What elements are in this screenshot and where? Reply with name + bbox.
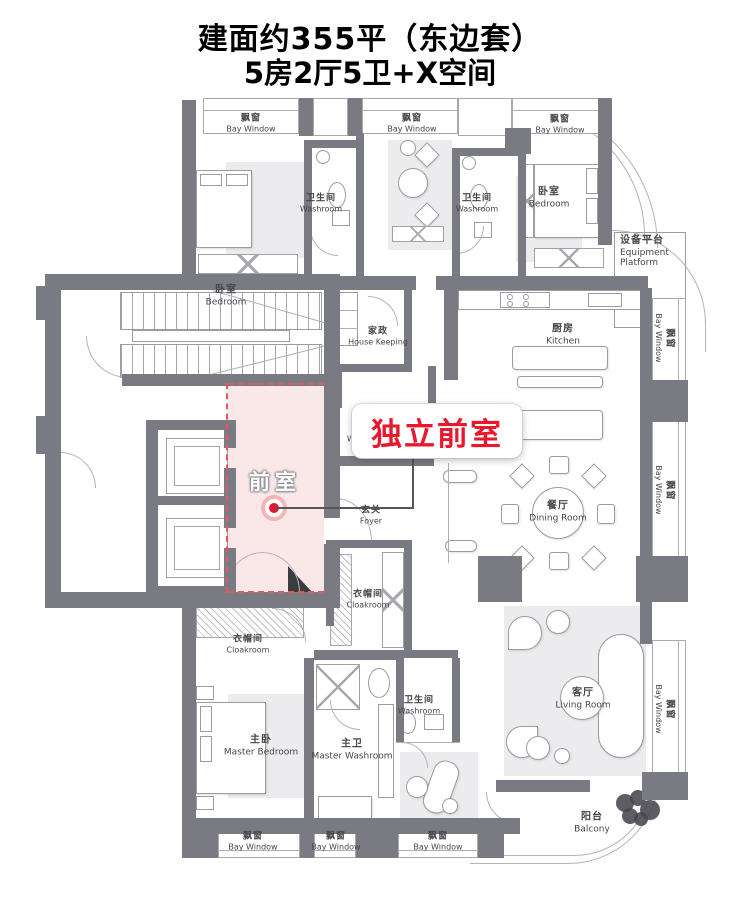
wall <box>334 364 412 372</box>
window-line <box>678 640 679 780</box>
washroom-top-left-zh: 卫生间 <box>300 194 342 205</box>
wall <box>36 416 46 454</box>
bay-window-top-2-zh: 飘窗 <box>387 114 436 125</box>
wall <box>348 98 362 136</box>
washroom-top-left-en: Washroom <box>300 205 342 215</box>
pillow <box>226 174 248 186</box>
washroom-top-right-zh: 卫生间 <box>456 194 498 205</box>
washroom-bottom-zh: 卫生间 <box>398 696 440 707</box>
elevator-car-inner <box>174 446 220 486</box>
living-room: 客厅Living Room <box>555 687 610 710</box>
wall <box>182 602 196 834</box>
bay-window-top-1: 飘窗Bay Window <box>226 114 275 135</box>
door-arc <box>456 226 484 254</box>
side-table <box>546 610 570 634</box>
bay-window-right-1-zh: 飘窗 <box>663 313 674 362</box>
window-line <box>512 110 600 111</box>
washroom-top-left: 卫生间Washroom <box>300 194 342 215</box>
wall <box>598 157 612 245</box>
dining-chair <box>549 456 569 474</box>
pillow <box>200 706 212 732</box>
wall <box>356 832 398 858</box>
master-bedroom: 主卧Master Bedroom <box>224 734 298 757</box>
master-washroom-zh: 主卫 <box>311 738 392 751</box>
pouf <box>442 798 458 814</box>
stair-treads <box>120 344 322 378</box>
bench <box>392 226 444 242</box>
dining-chair <box>509 463 534 488</box>
living-room-zh: 客厅 <box>555 687 610 700</box>
dining-chair <box>597 504 615 524</box>
equipment-platform-zh: 设备平台 <box>620 235 684 248</box>
door-arc <box>60 452 96 488</box>
equipment-platform-en: Equipment Platform <box>620 247 684 269</box>
wall <box>478 832 504 858</box>
wall <box>518 140 526 276</box>
plant-icon <box>634 812 648 826</box>
pillow <box>200 174 222 186</box>
dining-chair <box>549 552 569 570</box>
wall <box>182 100 196 276</box>
callout-leader-line <box>274 507 414 509</box>
wall <box>326 540 412 548</box>
wardrobe <box>198 254 298 274</box>
bay-window-top-2-en: Bay Window <box>387 125 436 135</box>
shower-head <box>462 156 476 170</box>
wall <box>299 98 313 136</box>
bay-window-right-2-en: Bay Window <box>654 465 664 514</box>
master-bedroom-en: Master Bedroom <box>224 747 298 758</box>
chair <box>406 776 428 798</box>
bay-window-bottom-3-zh: 飘窗 <box>413 832 462 843</box>
wall <box>640 288 652 382</box>
bay-window-top-2: 飘窗Bay Window <box>387 114 436 135</box>
armchair <box>508 616 542 650</box>
dining-room-en: Dining Room <box>529 513 587 524</box>
bay-window-bottom-3: 飘窗Bay Window <box>413 832 462 853</box>
bay-window-strip <box>313 98 348 136</box>
wall <box>452 658 460 742</box>
highlight-dashed-border <box>226 383 228 593</box>
shower-head <box>316 150 330 164</box>
dining-chair <box>581 545 606 570</box>
wall <box>404 540 412 652</box>
pouf <box>400 140 416 156</box>
cloakroom: 衣帽间Cloakroom <box>227 635 270 656</box>
wall <box>640 420 652 560</box>
title-line-2: 5房2厅5卫+X空间 <box>0 50 740 92</box>
washroom-top-right-en: Washroom <box>456 205 498 215</box>
bay-window-strip <box>458 98 512 136</box>
bedroom-top-right-en: Bedroom <box>529 199 570 210</box>
bedroom-top-left-en: Bedroom <box>206 297 247 308</box>
burner <box>523 301 529 307</box>
wall <box>314 650 404 660</box>
wall <box>598 98 612 160</box>
door-arc <box>368 296 398 326</box>
house-keeping-zh: 家政 <box>348 327 408 338</box>
bedroom-top-left-zh: 卧室 <box>206 284 247 297</box>
door-arc <box>86 336 128 378</box>
washroom-top-right: 卫生间Washroom <box>456 194 498 215</box>
bay-window-right-3-en: Bay Window <box>654 684 664 733</box>
cloakroom-zh: 衣帽间 <box>227 635 270 646</box>
wall <box>636 556 688 602</box>
wall <box>326 540 334 626</box>
window-line <box>678 420 679 560</box>
burner <box>523 294 529 300</box>
burner <box>507 294 513 300</box>
living-room-en: Living Room <box>555 700 610 711</box>
bay-window-top-3-zh: 飘窗 <box>535 115 584 126</box>
washroom-bottom: 卫生间Washroom <box>398 696 440 717</box>
wall <box>182 832 218 858</box>
master-bedroom-zh: 主卧 <box>224 734 298 747</box>
wall <box>356 133 364 276</box>
wall <box>146 420 236 430</box>
bay-window-bottom-2-zh: 飘窗 <box>311 832 360 843</box>
cloakroom-small: 衣帽间Cloakroom <box>347 590 390 611</box>
bay-window-right-2: 飘窗Bay Window <box>654 465 675 514</box>
wall <box>640 380 688 422</box>
bench <box>445 540 477 552</box>
kitchen-table <box>517 410 603 440</box>
wall <box>146 586 236 596</box>
pouf <box>526 736 550 760</box>
cloakroom-en: Cloakroom <box>227 646 270 656</box>
wall <box>478 556 522 602</box>
cloakroom-small-en: Cloakroom <box>347 601 390 611</box>
bay-window-bottom-1: 飘窗Bay Window <box>228 832 277 853</box>
nightstand <box>196 796 214 810</box>
front-room-label: 前室 <box>249 466 301 496</box>
master-washroom: 主卫Master Washroom <box>311 738 392 761</box>
wall <box>334 366 342 408</box>
round-table <box>398 168 428 198</box>
kitchen-en: Kitchen <box>546 336 580 347</box>
kitchen: 厨房Kitchen <box>546 323 580 346</box>
bay-window-top-1-zh: 飘窗 <box>226 114 275 125</box>
wall <box>496 780 590 792</box>
balcony-en: Balcony <box>574 824 610 835</box>
elevator-car-inner <box>174 526 220 570</box>
wall <box>36 286 46 320</box>
window-line <box>203 110 299 111</box>
house-keeping-en: House Keeping <box>348 338 408 348</box>
wall <box>642 772 688 800</box>
kitchen-island <box>512 346 608 370</box>
dining-room: 餐厅Dining Room <box>529 500 587 523</box>
wall <box>304 140 364 148</box>
equipment-platform: 设备平台Equipment Platform <box>620 235 684 269</box>
bay-window-bottom-3-en: Bay Window <box>413 843 462 853</box>
pouf <box>554 748 570 764</box>
balcony: 阳台Balcony <box>574 811 610 834</box>
nightstand <box>196 686 214 700</box>
kitchen-island <box>517 376 603 388</box>
window-line <box>362 110 458 111</box>
wall <box>45 274 61 608</box>
callout-independent-front-room: 独立前室 <box>352 404 522 458</box>
wall <box>146 420 158 598</box>
dining-chair <box>581 463 606 488</box>
wall <box>45 274 340 290</box>
bedroom-top-left: 卧室Bedroom <box>206 284 247 307</box>
stair-handrail <box>132 330 290 342</box>
wall <box>146 496 236 505</box>
highlight-dashed-border <box>228 383 324 385</box>
toilet <box>368 668 390 698</box>
bay-window-right-3-zh: 飘窗 <box>663 684 674 733</box>
window-line <box>678 298 679 382</box>
bedroom-top-right: 卧室Bedroom <box>529 186 570 209</box>
foyer-en: Foyer <box>360 517 382 527</box>
bay-window-right-3: 飘窗Bay Window <box>654 684 675 733</box>
callout-leader-line <box>412 458 414 509</box>
bay-window-top-1-en: Bay Window <box>226 125 275 135</box>
bay-window-right-2-zh: 飘窗 <box>663 465 674 514</box>
washroom-bottom-en: Washroom <box>398 707 440 717</box>
bay-window-bottom-2: 飘窗Bay Window <box>311 832 360 853</box>
wall <box>452 148 526 156</box>
master-washroom-en: Master Washroom <box>311 751 392 762</box>
kitchen-zh: 厨房 <box>546 323 580 336</box>
bay-window-bottom-2-en: Bay Window <box>311 843 360 853</box>
bay-window-right-1-en: Bay Window <box>654 313 664 362</box>
dining-chair <box>501 504 519 524</box>
wardrobe <box>534 248 604 268</box>
highlight-dashed-border <box>228 591 324 593</box>
door-arc <box>402 742 428 768</box>
wall <box>460 276 648 290</box>
wall <box>640 598 652 644</box>
cloakroom-small-zh: 衣帽间 <box>347 590 390 601</box>
bay-window-bottom-1-en: Bay Window <box>228 843 277 853</box>
callout-text: 独立前室 <box>371 409 503 454</box>
dining-room-zh: 餐厅 <box>529 500 587 513</box>
bay-window-top-3-en: Bay Window <box>535 126 584 136</box>
cabinet-line <box>448 463 449 563</box>
bay-window-bottom-1-zh: 飘窗 <box>228 832 277 843</box>
bedroom-top-right-zh: 卧室 <box>529 186 570 199</box>
bay-window-right-1: 飘窗Bay Window <box>654 313 675 362</box>
pillow <box>200 736 212 762</box>
floorplan-canvas: 建面约355平（东边套） 5房2厅5卫+X空间 <box>0 0 740 899</box>
house-keeping: 家政House Keeping <box>348 327 408 348</box>
door-arc <box>310 228 338 256</box>
burner <box>507 301 513 307</box>
door-arc <box>330 700 360 730</box>
balcony-zh: 阳台 <box>574 811 610 824</box>
wall <box>444 288 458 380</box>
bay-window-top-3: 飘窗Bay Window <box>535 115 584 136</box>
